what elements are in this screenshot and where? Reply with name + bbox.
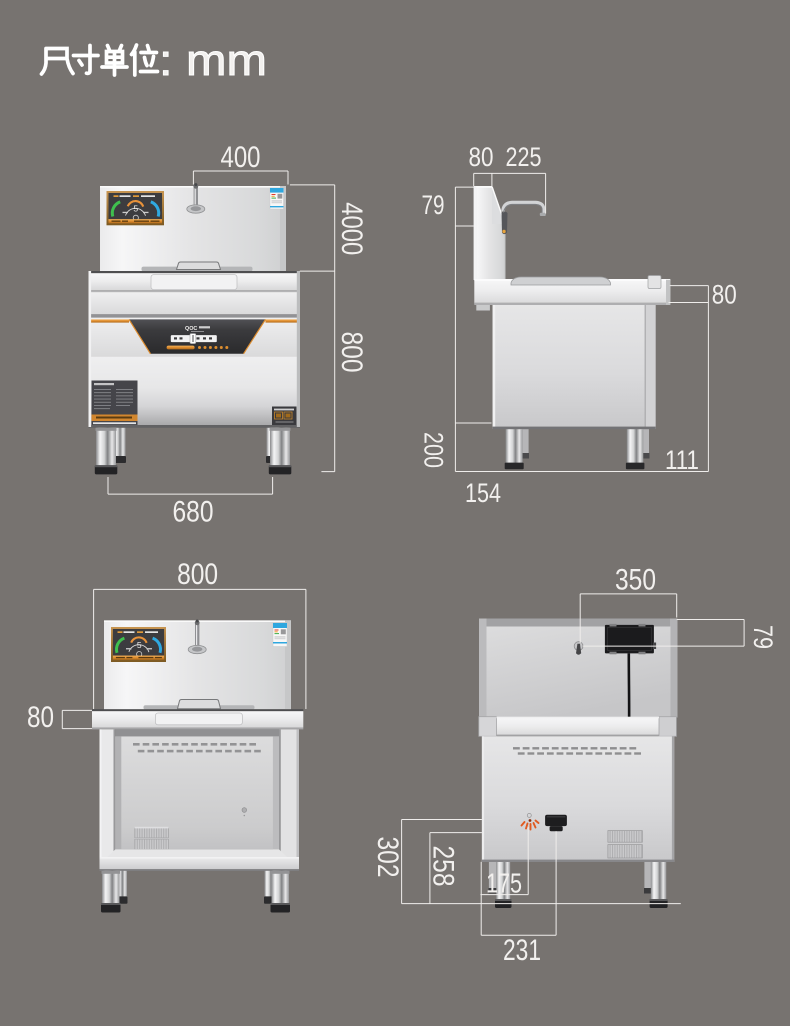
svg-text:680: 680 [173,496,214,529]
svg-text:225: 225 [506,142,542,172]
svg-text:: mm: : mm [159,36,267,85]
svg-text:80: 80 [469,142,494,172]
svg-text:80: 80 [712,280,737,310]
svg-text:258: 258 [427,846,460,887]
svg-text:200: 200 [419,432,449,468]
svg-text:79: 79 [422,190,445,220]
svg-text:800: 800 [335,332,368,373]
svg-text:111: 111 [665,445,699,475]
svg-text:80: 80 [27,701,54,734]
svg-text:400: 400 [221,141,261,174]
svg-text:5: 5 [137,640,142,650]
svg-text:800: 800 [177,558,218,591]
svg-text:302: 302 [371,837,404,878]
svg-text:154: 154 [465,478,501,508]
svg-text:79: 79 [748,625,778,649]
svg-text:4000: 4000 [335,202,368,255]
svg-text:175: 175 [486,868,522,899]
svg-text:350: 350 [615,564,656,597]
svg-text:231: 231 [503,934,541,967]
svg-text:5: 5 [133,204,138,214]
